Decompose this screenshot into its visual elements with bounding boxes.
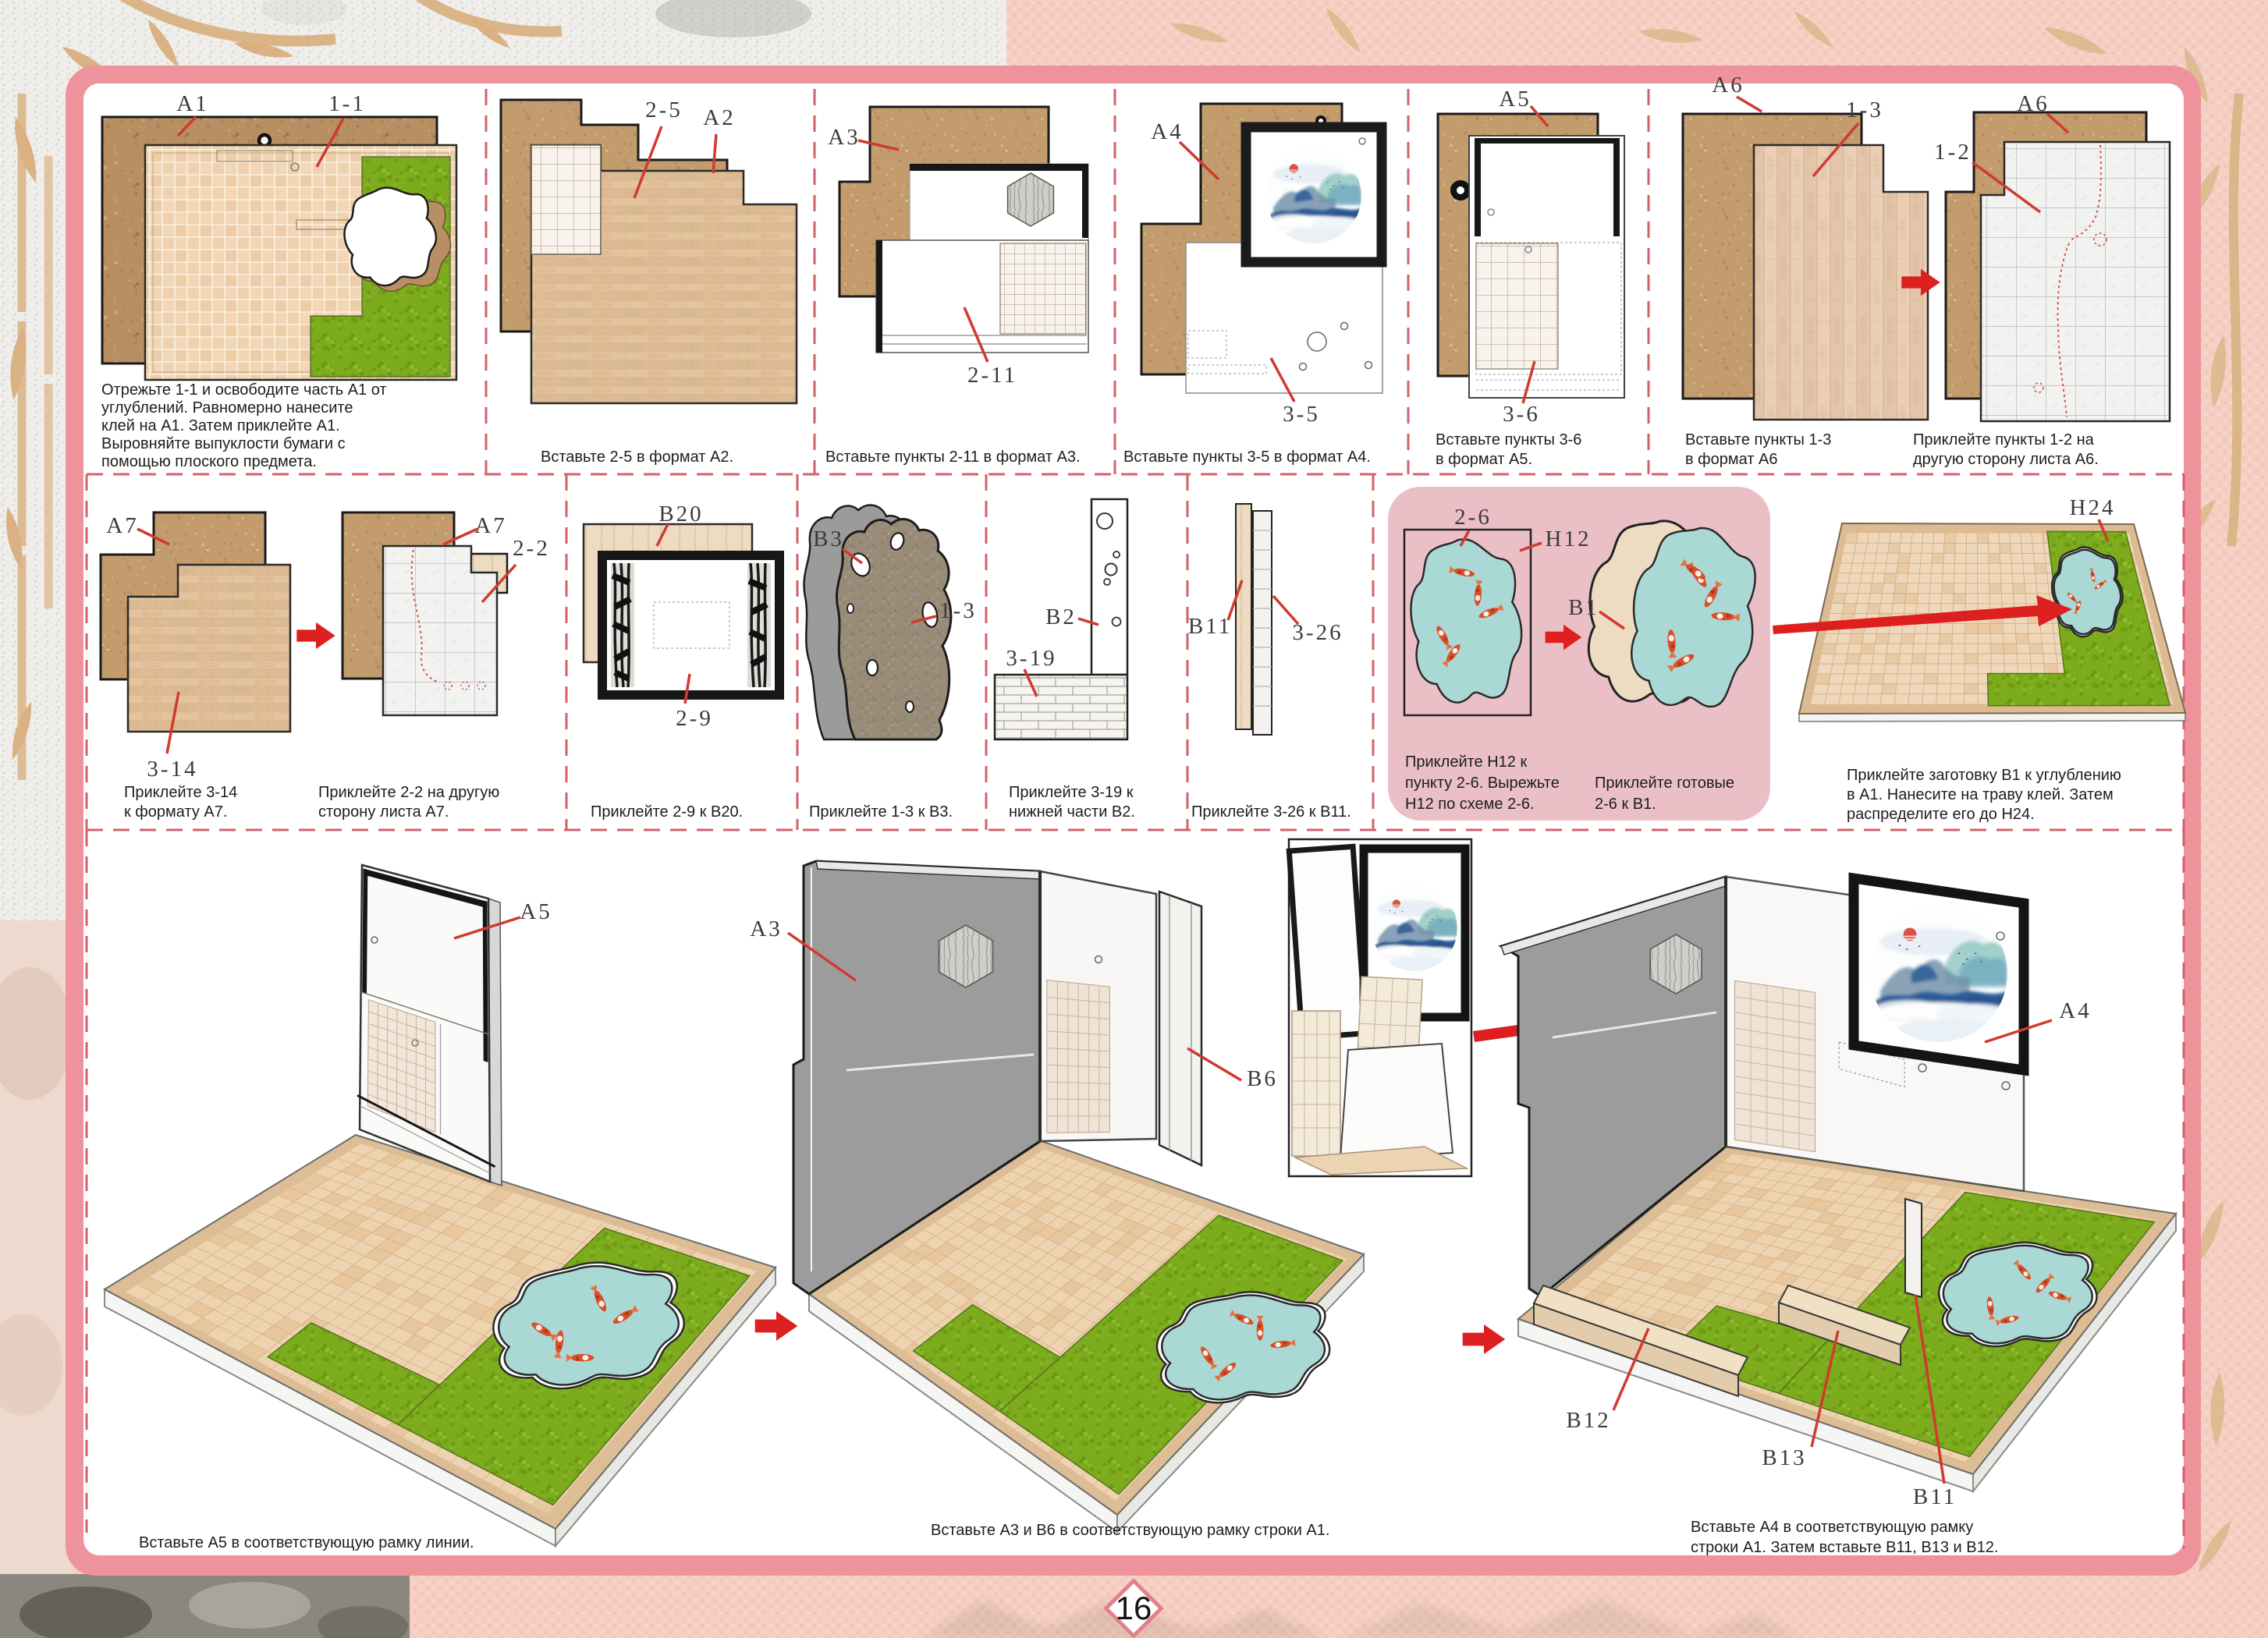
svg-text:2-9: 2-9: [676, 706, 713, 731]
svg-text:А2: А2: [703, 105, 735, 130]
svg-text:1-1: 1-1: [328, 91, 366, 116]
svg-text:Отрежьте 1-1 и освободите част: Отрежьте 1-1 и освободите часть А1 от: [101, 381, 387, 399]
svg-text:3-26: 3-26: [1292, 620, 1343, 645]
svg-text:Приклейте Н12 к: Приклейте Н12 к: [1405, 753, 1527, 771]
svg-text:Приклейте пункты 1-2 на: Приклейте пункты 1-2 на: [1913, 431, 2095, 448]
svg-text:А7: А7: [106, 513, 138, 538]
svg-text:2-6: 2-6: [1454, 505, 1492, 530]
svg-text:Приклейте 1-3 к В3.: Приклейте 1-3 к В3.: [809, 803, 953, 821]
svg-text:3-5: 3-5: [1283, 402, 1320, 427]
svg-text:Вставьте А4 в соответствующую: Вставьте А4 в соответствующую рамку: [1691, 1519, 1973, 1536]
svg-text:1-3: 1-3: [939, 598, 977, 623]
svg-text:1-3: 1-3: [1846, 97, 1883, 122]
svg-text:сторону листа А7.: сторону листа А7.: [318, 803, 449, 821]
svg-text:B1: B1: [1568, 595, 1599, 620]
svg-text:1-2: 1-2: [1934, 140, 1972, 165]
svg-text:B3: B3: [813, 526, 844, 551]
svg-text:строки А1. Затем вставьте В11,: строки А1. Затем вставьте В11, В13 и В12…: [1691, 1539, 1998, 1556]
svg-text:А3: А3: [828, 125, 860, 150]
svg-text:помощью плоского предмета.: помощью плоского предмета.: [101, 453, 317, 470]
svg-text:распределите его до Н24.: распределите его до Н24.: [1847, 806, 2035, 823]
svg-text:3-19: 3-19: [1006, 646, 1056, 671]
svg-text:А5: А5: [520, 899, 552, 924]
svg-text:3-6: 3-6: [1503, 402, 1540, 427]
svg-text:2-6 к В1.: 2-6 к В1.: [1595, 796, 1656, 813]
svg-text:в формат А5.: в формат А5.: [1436, 451, 1532, 468]
svg-text:Вставьте пункты 3-6: Вставьте пункты 3-6: [1436, 431, 1581, 448]
svg-text:Приклейте 3-19 к: Приклейте 3-19 к: [1009, 784, 1134, 801]
svg-text:в А1. Нанесите на траву клей.: в А1. Нанесите на траву клей. Затем: [1847, 786, 2114, 803]
svg-text:А3: А3: [750, 916, 782, 941]
svg-text:Приклейте 3-14: Приклейте 3-14: [124, 784, 237, 801]
svg-text:А6: А6: [2017, 91, 2049, 116]
svg-text:B11: B11: [1188, 614, 1232, 639]
svg-text:Приклейте 3-26 к В11.: Приклейте 3-26 к В11.: [1191, 803, 1351, 821]
svg-text:А6: А6: [1712, 73, 1744, 97]
svg-text:пункту 2-6. Вырежьте: пункту 2-6. Вырежьте: [1405, 775, 1560, 792]
svg-text:16: 16: [1116, 1590, 1152, 1626]
svg-text:3-14: 3-14: [147, 757, 197, 782]
svg-text:Вставьте пункты 3-5 в формат А: Вставьте пункты 3-5 в формат А4.: [1123, 448, 1371, 466]
svg-text:нижней части В2.: нижней части В2.: [1009, 803, 1135, 821]
svg-text:А4: А4: [2059, 998, 2091, 1023]
svg-text:2-11: 2-11: [967, 363, 1017, 388]
svg-text:Вставьте А5 в соответствующую: Вставьте А5 в соответствующую рамку лини…: [139, 1534, 474, 1551]
svg-text:Приклейте заготовку В1 к углуб: Приклейте заготовку В1 к углублению: [1847, 767, 2121, 784]
svg-text:Приклейте готовые: Приклейте готовые: [1595, 775, 1734, 792]
svg-text:B2: B2: [1045, 604, 1077, 629]
svg-text:Вставьте пункты 2-11 в формат: Вставьте пункты 2-11 в формат А3.: [825, 448, 1081, 466]
svg-text:B6: B6: [1247, 1066, 1278, 1091]
svg-text:Вставьте 2-5 в формат А2.: Вставьте 2-5 в формат А2.: [541, 448, 733, 466]
svg-text:А4: А4: [1151, 119, 1183, 144]
svg-text:Н12: Н12: [1546, 526, 1592, 551]
svg-text:клей на А1. Затем приклейте А1: клей на А1. Затем приклейте А1.: [101, 417, 340, 434]
svg-text:А7: А7: [474, 513, 506, 538]
svg-text:B12: B12: [1566, 1408, 1610, 1433]
svg-text:Выровняйте выпуклости бумаги с: Выровняйте выпуклости бумаги с: [101, 435, 346, 452]
svg-text:Вставьте А3 и В6 в соответству: Вставьте А3 и В6 в соответствующую рамку…: [931, 1522, 1329, 1539]
svg-text:Вставьте пункты 1-3: Вставьте пункты 1-3: [1685, 431, 1831, 448]
svg-text:в формат А6: в формат А6: [1685, 451, 1778, 468]
svg-text:2-2: 2-2: [513, 536, 550, 561]
svg-text:B20: B20: [658, 502, 703, 526]
svg-text:Н24: Н24: [2070, 495, 2116, 520]
svg-text:Н12 по схеме 2-6.: Н12 по схеме 2-6.: [1405, 796, 1535, 813]
svg-text:2-5: 2-5: [645, 97, 683, 122]
svg-text:Приклейте 2-9 к В20.: Приклейте 2-9 к В20.: [591, 803, 743, 821]
svg-text:к формату А7.: к формату А7.: [124, 803, 227, 821]
svg-text:A1: A1: [176, 91, 208, 116]
svg-text:А5: А5: [1499, 87, 1531, 112]
svg-text:другую сторону листа А6.: другую сторону листа А6.: [1913, 451, 2099, 468]
svg-text:углублений. Равномерно нанесит: углублений. Равномерно нанесите: [101, 399, 353, 417]
svg-text:B13: B13: [1762, 1445, 1806, 1470]
svg-text:Приклейте 2-2 на другую: Приклейте 2-2 на другую: [318, 784, 499, 801]
svg-text:B11: B11: [1913, 1484, 1957, 1509]
